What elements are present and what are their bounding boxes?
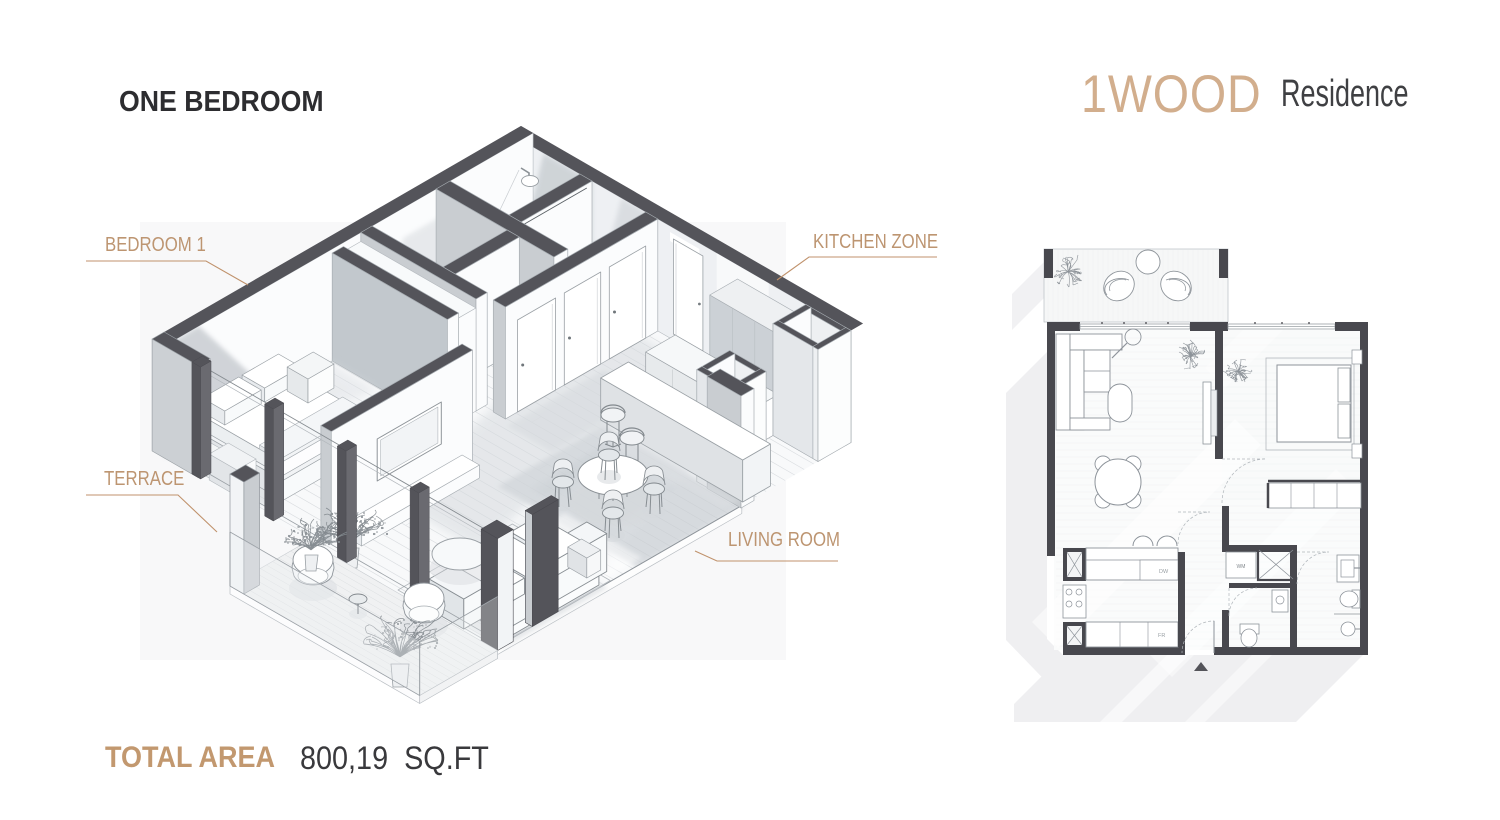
svg-text:DW: DW xyxy=(1159,569,1169,575)
svg-text:FR: FR xyxy=(1158,633,1165,639)
svg-text:WM: WM xyxy=(1237,564,1246,570)
